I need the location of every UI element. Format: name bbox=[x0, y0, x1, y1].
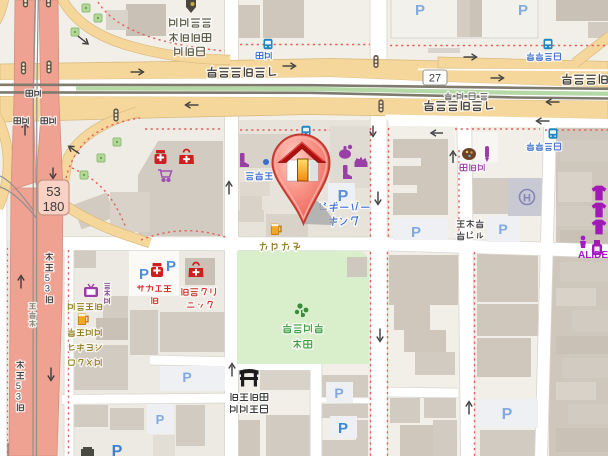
svg-text:P: P bbox=[334, 385, 343, 401]
svg-text:H: H bbox=[523, 193, 531, 205]
svg-text:180: 180 bbox=[43, 199, 65, 214]
svg-text:27: 27 bbox=[429, 73, 441, 85]
svg-text:5: 5 bbox=[16, 381, 21, 392]
svg-text:P: P bbox=[338, 188, 349, 205]
svg-text:P: P bbox=[415, 2, 425, 19]
svg-text:3: 3 bbox=[16, 392, 21, 403]
svg-text:P: P bbox=[139, 266, 149, 283]
svg-text:P: P bbox=[338, 420, 348, 437]
svg-text:P: P bbox=[166, 258, 176, 275]
svg-text:P: P bbox=[156, 412, 165, 427]
svg-text:P: P bbox=[502, 406, 513, 423]
svg-text:3: 3 bbox=[45, 284, 50, 295]
svg-text:ALIDEU: ALIDEU bbox=[578, 250, 608, 261]
svg-text:5: 5 bbox=[45, 273, 50, 284]
svg-text:P: P bbox=[182, 369, 191, 385]
svg-text:53: 53 bbox=[46, 184, 60, 199]
svg-text:P: P bbox=[498, 221, 507, 237]
svg-text:P: P bbox=[518, 2, 528, 19]
svg-text:P: P bbox=[112, 443, 123, 456]
svg-text:P: P bbox=[411, 224, 421, 241]
